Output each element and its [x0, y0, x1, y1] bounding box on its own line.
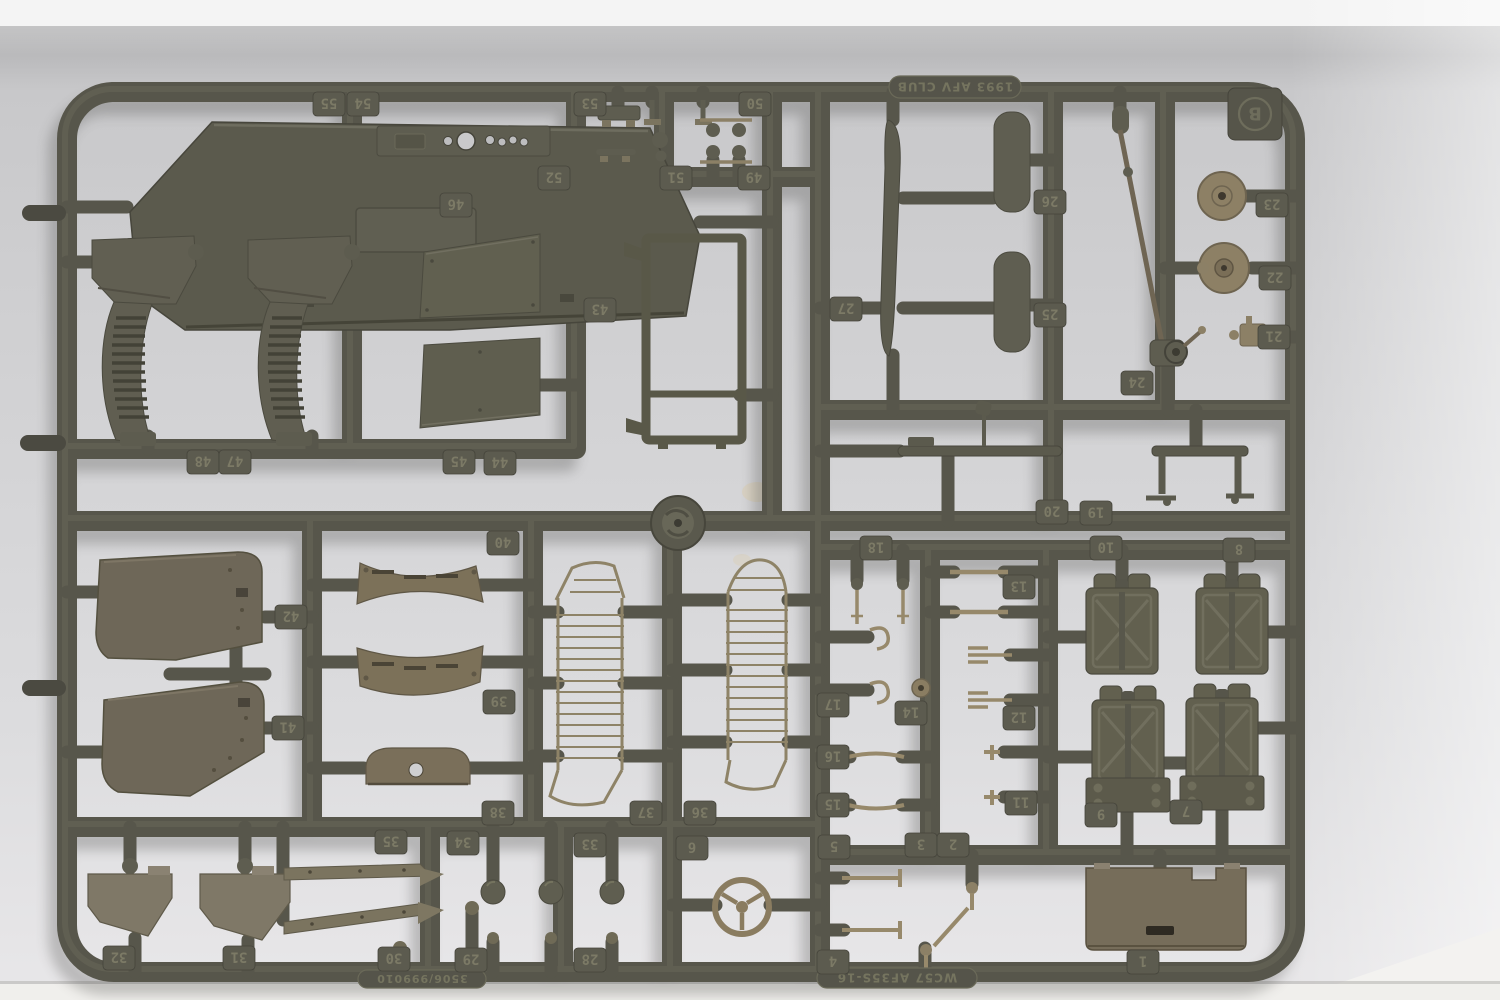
part-tag-47: 47	[219, 450, 251, 474]
part-number-label: 20	[1044, 503, 1061, 519]
part-tag-28: 28	[574, 948, 606, 972]
part-tag-12: 12	[1003, 706, 1035, 730]
part-jerry-can-based-left	[1086, 686, 1170, 812]
part-tag-36: 36	[684, 801, 716, 825]
part-number-label: 4	[829, 953, 837, 969]
part-number-label: 36	[692, 804, 709, 820]
part-number-label: 52	[546, 169, 563, 185]
part-number-label: 33	[582, 836, 599, 852]
part-number-label: 7	[1182, 803, 1190, 819]
part-number-label: 37	[638, 804, 655, 820]
part-tag-23: 23	[1256, 193, 1288, 217]
part-number-label: 23	[1264, 196, 1281, 212]
sprue-letter-tab: B	[1228, 88, 1282, 140]
part-tag-22: 22	[1259, 266, 1291, 290]
part-number-label: 14	[903, 704, 920, 720]
part-number-label: 47	[227, 453, 244, 469]
part-tag-31: 31	[223, 946, 255, 970]
part-number-label: 16	[825, 748, 842, 764]
part-number-label: 9	[1097, 806, 1105, 822]
part-tag-44: 44	[484, 451, 516, 475]
part-tag-17: 17	[817, 693, 849, 717]
part-tag-53: 53	[574, 92, 606, 116]
part-tag-37: 37	[630, 801, 662, 825]
part-tag-33: 33	[574, 833, 606, 857]
part-number-label: 42	[283, 608, 300, 624]
part-tag-2: 2	[937, 833, 969, 857]
part-tag-8: 8	[1223, 538, 1255, 562]
part-number-label: 29	[463, 951, 480, 967]
part-tag-19: 19	[1080, 501, 1112, 525]
part-number-label: 22	[1267, 269, 1284, 285]
part-tag-42: 42	[275, 605, 307, 629]
part-tag-40: 40	[487, 531, 519, 555]
part-number-label: 54	[355, 95, 372, 111]
part-tag-14: 14	[895, 701, 927, 725]
part-number-label: 21	[1266, 328, 1283, 344]
part-number-label: 45	[451, 453, 468, 469]
part-number-label: 34	[455, 834, 472, 850]
part-number-label: 24	[1129, 374, 1146, 390]
part-tag-4: 4	[817, 950, 849, 974]
part-tag-32: 32	[103, 946, 135, 970]
part-number-label: 48	[195, 453, 212, 469]
part-tag-51: 51	[660, 166, 692, 190]
part-tag-52: 52	[538, 166, 570, 190]
part-pulley-14	[912, 679, 930, 697]
part-number-label: 15	[825, 796, 842, 812]
part-number-label: 5	[830, 838, 838, 854]
part-tag-41: 41	[272, 716, 304, 740]
background-right-glow	[1290, 0, 1500, 1000]
part-number-label: 31	[231, 949, 248, 965]
part-tag-1: 1	[1127, 950, 1159, 974]
part-number-label: 53	[582, 95, 599, 111]
part-disc-upper	[1198, 172, 1246, 220]
part-number-label: 13	[1011, 578, 1028, 594]
bottom-marking-text: WC57 AF35S-16	[837, 971, 957, 985]
part-number-label: 51	[668, 169, 685, 185]
part-number-label: 8	[1235, 541, 1243, 557]
part-tag-43: 43	[584, 298, 616, 322]
part-tag-27: 27	[830, 297, 862, 321]
part-number-label: 17	[825, 696, 842, 712]
part-tag-49: 49	[738, 166, 770, 190]
part-number-label: 28	[582, 951, 599, 967]
part-tag-15: 15	[817, 793, 849, 817]
top-marking: 1993 AFV CLUB	[889, 76, 1021, 98]
part-number-label: 43	[592, 301, 609, 317]
part-tag-46: 46	[440, 193, 472, 217]
part-number-label: 1	[1139, 953, 1147, 969]
part-number-label: 27	[838, 300, 855, 316]
part-tag-16: 16	[817, 745, 849, 769]
mold-number-text: 3506/999010	[376, 972, 468, 985]
part-tag-48: 48	[187, 450, 219, 474]
part-number-label: 19	[1088, 504, 1105, 520]
part-number-label: 32	[111, 949, 128, 965]
part-tag-29: 29	[455, 948, 487, 972]
part-number-label: 11	[1013, 794, 1030, 810]
part-tag-11: 11	[1005, 791, 1037, 815]
part-tag-30: 30	[378, 947, 410, 971]
part-number-label: 2	[949, 836, 957, 852]
part-number-label: 38	[490, 804, 507, 820]
part-number-label: 25	[1042, 306, 1059, 322]
part-tag-7: 7	[1170, 800, 1202, 824]
part-number-label: 46	[448, 196, 465, 212]
part-tag-26: 26	[1034, 190, 1066, 214]
part-tag-39: 39	[483, 690, 515, 714]
part-tag-18: 18	[860, 536, 892, 560]
part-tag-38: 38	[482, 801, 514, 825]
top-marking-text: 1993 AFV CLUB	[897, 80, 1013, 94]
part-door-panel-upper	[96, 552, 262, 660]
part-tag-3: 3	[905, 833, 937, 857]
part-number-label: 3	[917, 836, 925, 852]
part-jerry-can-plain-left	[1086, 574, 1158, 674]
part-tag-20: 20	[1036, 500, 1068, 524]
part-jerry-can-plain-right	[1196, 574, 1268, 674]
part-number-label: 41	[280, 719, 297, 735]
part-tag-9: 9	[1085, 803, 1117, 827]
part-number-label: 39	[491, 693, 508, 709]
part-tag-35: 35	[375, 830, 407, 854]
part-tag-45: 45	[443, 450, 475, 474]
part-number-label: 6	[688, 839, 696, 855]
part-rear-panel-1	[1086, 863, 1246, 950]
part-tag-50: 50	[739, 92, 771, 116]
part-number-label: 55	[321, 95, 338, 111]
part-dashboard	[377, 126, 550, 156]
part-tag-24: 24	[1121, 371, 1153, 395]
photo-of-model-kit-sprue: B 1993 AFV CLUB WC57 AF35S-16 3506/99901…	[0, 0, 1500, 1000]
part-tag-13: 13	[1003, 575, 1035, 599]
part-jerry-can-based-right	[1180, 684, 1264, 810]
part-number-label: 26	[1042, 193, 1059, 209]
part-tag-25: 25	[1034, 303, 1066, 327]
sprue-photo-canvas: B 1993 AFV CLUB WC57 AF35S-16 3506/99901…	[0, 0, 1500, 1000]
sprue-letter: B	[1248, 103, 1262, 124]
part-number-label: 50	[747, 95, 764, 111]
part-disc-lower	[1197, 243, 1249, 293]
part-number-label: 30	[386, 950, 403, 966]
part-tag-5: 5	[818, 835, 850, 859]
part-number-label: 10	[1098, 539, 1115, 555]
part-number-label: 18	[868, 539, 885, 555]
part-number-label: 40	[495, 534, 512, 550]
part-tag-55: 55	[313, 92, 345, 116]
part-windshield-panel-lower	[420, 338, 540, 428]
mold-number-marking: 3506/999010	[358, 970, 486, 988]
background-top-strip	[0, 0, 1500, 26]
part-tag-54: 54	[347, 92, 379, 116]
part-number-label: 49	[746, 169, 763, 185]
part-number-label: 44	[492, 454, 509, 470]
part-gate-disc	[651, 496, 705, 550]
part-cover-with-hole	[366, 748, 470, 784]
part-tag-6: 6	[676, 836, 708, 860]
part-number-label: 12	[1011, 709, 1028, 725]
part-tag-10: 10	[1090, 536, 1122, 560]
part-number-label: 35	[383, 833, 400, 849]
part-tag-21: 21	[1258, 325, 1290, 349]
part-tag-34: 34	[447, 831, 479, 855]
